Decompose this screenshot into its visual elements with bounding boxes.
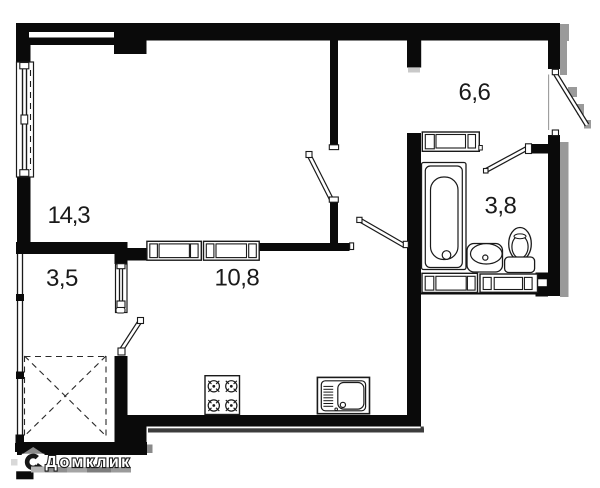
svg-text:Домклик: Домклик bbox=[46, 454, 132, 471]
svg-text:10,8: 10,8 bbox=[215, 265, 260, 292]
svg-text:14,3: 14,3 bbox=[48, 202, 91, 229]
svg-text:3,8: 3,8 bbox=[485, 193, 517, 220]
svg-text:6,6: 6,6 bbox=[459, 79, 491, 106]
svg-text:3,5: 3,5 bbox=[46, 265, 78, 292]
